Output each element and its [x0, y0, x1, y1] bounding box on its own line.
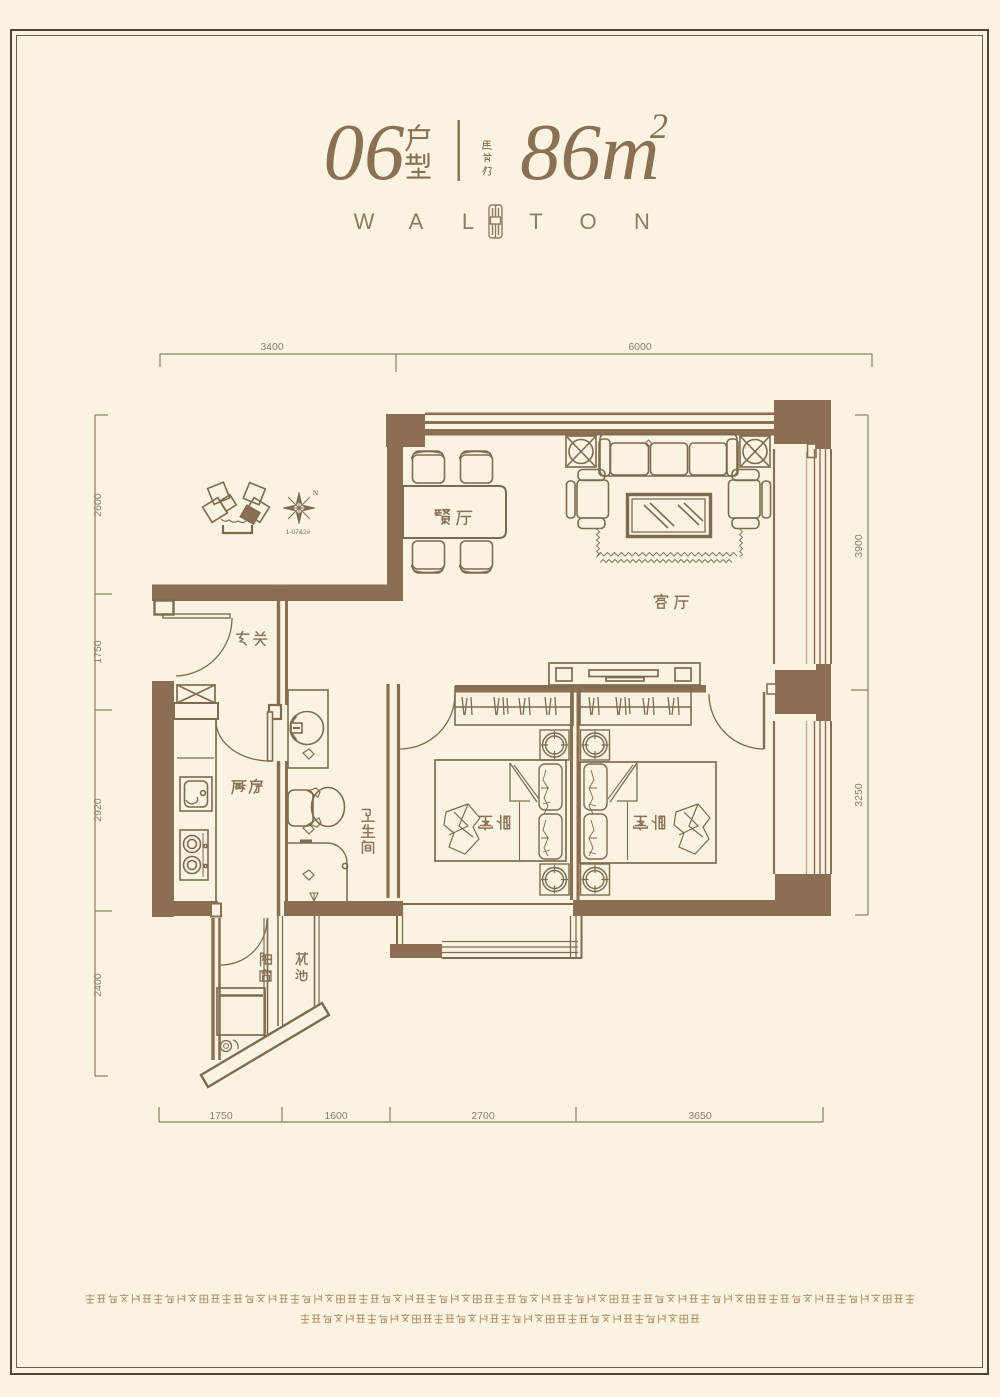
svg-text:3250: 3250: [853, 783, 865, 807]
svg-text:2600: 2600: [92, 493, 104, 517]
svg-text:A: A: [409, 209, 424, 234]
svg-text:86m: 86m: [520, 107, 660, 197]
svg-text:2400: 2400: [92, 973, 104, 997]
svg-text:L: L: [462, 209, 474, 234]
svg-text:N: N: [634, 209, 650, 234]
svg-text:1750: 1750: [92, 640, 104, 664]
svg-text:W: W: [354, 209, 375, 234]
svg-text:2700: 2700: [471, 1110, 495, 1122]
svg-text:1750: 1750: [209, 1110, 233, 1122]
svg-text:1-07&2#: 1-07&2#: [286, 529, 311, 536]
svg-text:6000: 6000: [628, 341, 652, 353]
svg-text:O: O: [579, 209, 596, 234]
svg-text:T: T: [529, 209, 542, 234]
svg-text:06: 06: [324, 107, 406, 197]
svg-text:3650: 3650: [688, 1110, 712, 1122]
svg-text:N: N: [313, 490, 318, 497]
svg-text:3400: 3400: [260, 341, 284, 353]
svg-text:3900: 3900: [853, 534, 865, 558]
svg-text:2: 2: [650, 106, 668, 146]
svg-text:1600: 1600: [324, 1110, 348, 1122]
svg-text:2920: 2920: [92, 798, 104, 822]
